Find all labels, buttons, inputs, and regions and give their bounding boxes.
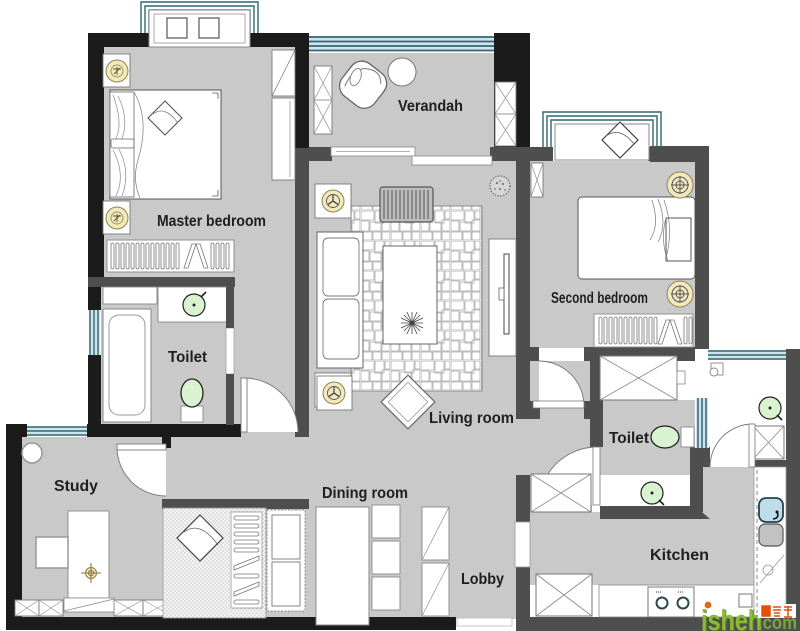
svg-text:Master bedroom: Master bedroom [157, 213, 266, 230]
svg-text:Toilet: Toilet [609, 430, 650, 447]
svg-text:Study: Study [54, 478, 98, 495]
svg-text:Dining room: Dining room [322, 485, 408, 502]
svg-text:jsheh: jsheh [700, 605, 762, 631]
svg-text:Toilet: Toilet [168, 349, 208, 366]
svg-text:Second bedroom: Second bedroom [551, 290, 648, 307]
svg-text:Verandah: Verandah [398, 98, 463, 115]
svg-text:Living room: Living room [429, 410, 514, 427]
svg-text:Lobby: Lobby [461, 571, 504, 588]
svg-text:Kitchen: Kitchen [650, 547, 709, 564]
